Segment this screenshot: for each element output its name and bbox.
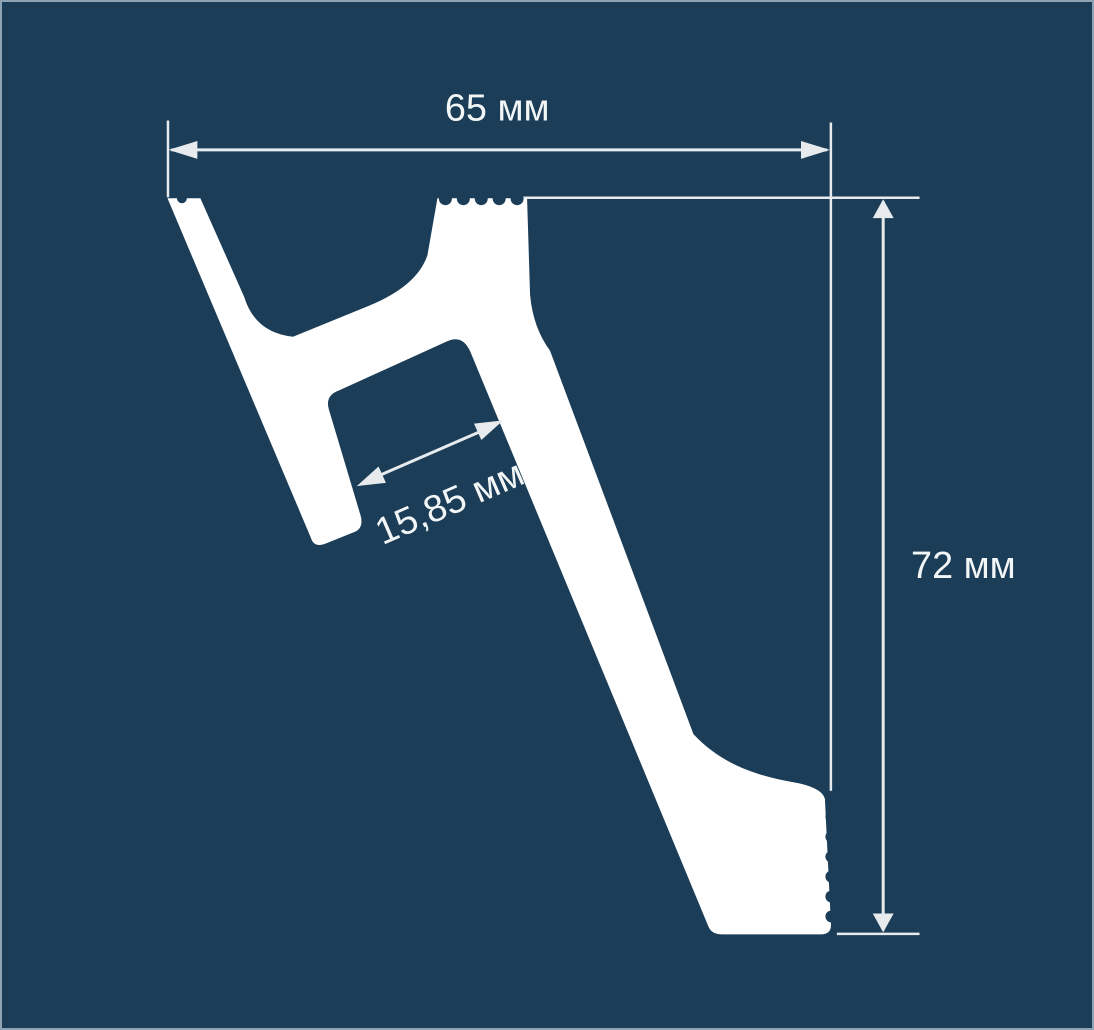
serration-notch bbox=[825, 871, 837, 883]
serration-notch bbox=[825, 831, 837, 843]
height-arrowhead-up-icon bbox=[873, 199, 894, 218]
slot-dimension-label: 15,85 мм bbox=[369, 452, 530, 553]
serration-notch bbox=[825, 910, 837, 922]
serration-notch bbox=[825, 891, 837, 903]
serration-notch bbox=[511, 192, 524, 205]
slot-arrowhead-right-icon bbox=[474, 420, 503, 440]
height-dimension-label: 72 мм bbox=[911, 545, 1016, 587]
serration-notch bbox=[439, 192, 452, 205]
height-arrowhead-down-icon bbox=[873, 913, 894, 932]
width-arrowhead-right-icon bbox=[801, 141, 830, 159]
profile-drawing-canvas: 65 мм 72 мм 15,85 мм bbox=[0, 0, 1094, 1030]
serration-notch bbox=[457, 192, 470, 205]
profile-cross-section-shape bbox=[167, 198, 830, 934]
width-dimension-label: 65 мм bbox=[445, 88, 550, 130]
serration-notch bbox=[493, 192, 506, 205]
serration-notch bbox=[825, 791, 837, 803]
slot-arrowhead-left-icon bbox=[357, 466, 386, 486]
serration-notch bbox=[177, 193, 187, 203]
technical-drawing: 65 мм 72 мм 15,85 мм bbox=[2, 2, 1092, 1028]
serration-notch bbox=[825, 851, 837, 863]
serration-notch bbox=[825, 811, 837, 823]
width-arrowhead-left-icon bbox=[168, 141, 197, 159]
serration-notch bbox=[475, 192, 488, 205]
